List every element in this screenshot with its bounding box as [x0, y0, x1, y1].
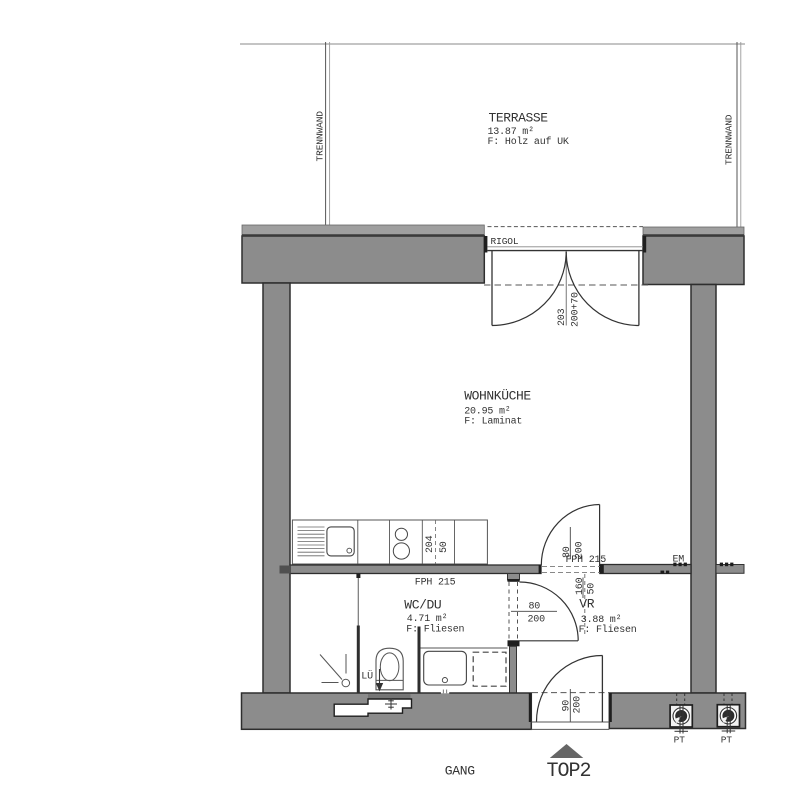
svg-text:PT: PT [721, 734, 733, 745]
svg-text:F: Fliesen: F: Fliesen [579, 624, 637, 636]
svg-text:GANG: GANG [445, 764, 475, 779]
svg-text:TERRASSE: TERRASSE [489, 111, 549, 126]
svg-text:TRENNWAND: TRENNWAND [315, 111, 326, 162]
svg-text:FPH 215: FPH 215 [415, 578, 456, 589]
svg-text:F: Fliesen: F: Fliesen [406, 623, 464, 635]
svg-text:TRENNWAND: TRENNWAND [724, 114, 735, 165]
svg-text:F: Holz auf UK: F: Holz auf UK [488, 136, 569, 148]
svg-text:FPH 215: FPH 215 [566, 555, 607, 566]
svg-text:VR: VR [579, 597, 594, 612]
svg-text:PT: PT [674, 734, 686, 745]
svg-text:90: 90 [562, 700, 573, 712]
svg-text:RIGOL: RIGOL [491, 236, 519, 247]
svg-text:LÜ: LÜ [361, 670, 373, 683]
svg-text:50: 50 [587, 583, 598, 595]
svg-text:50: 50 [439, 541, 450, 553]
svg-text:200: 200 [573, 696, 584, 714]
svg-text:200+70: 200+70 [571, 292, 582, 327]
svg-text:TOP2: TOP2 [547, 760, 591, 783]
svg-text:203: 203 [557, 308, 568, 326]
svg-text:4.71 m²: 4.71 m² [407, 614, 448, 625]
svg-text:WC/DU: WC/DU [404, 598, 441, 613]
svg-text:200: 200 [528, 615, 546, 626]
svg-text:F: Laminat: F: Laminat [464, 415, 522, 427]
svg-text:204: 204 [425, 535, 436, 553]
svg-text:WOHNKÜCHE: WOHNKÜCHE [464, 389, 531, 404]
svg-text:160: 160 [575, 577, 586, 595]
